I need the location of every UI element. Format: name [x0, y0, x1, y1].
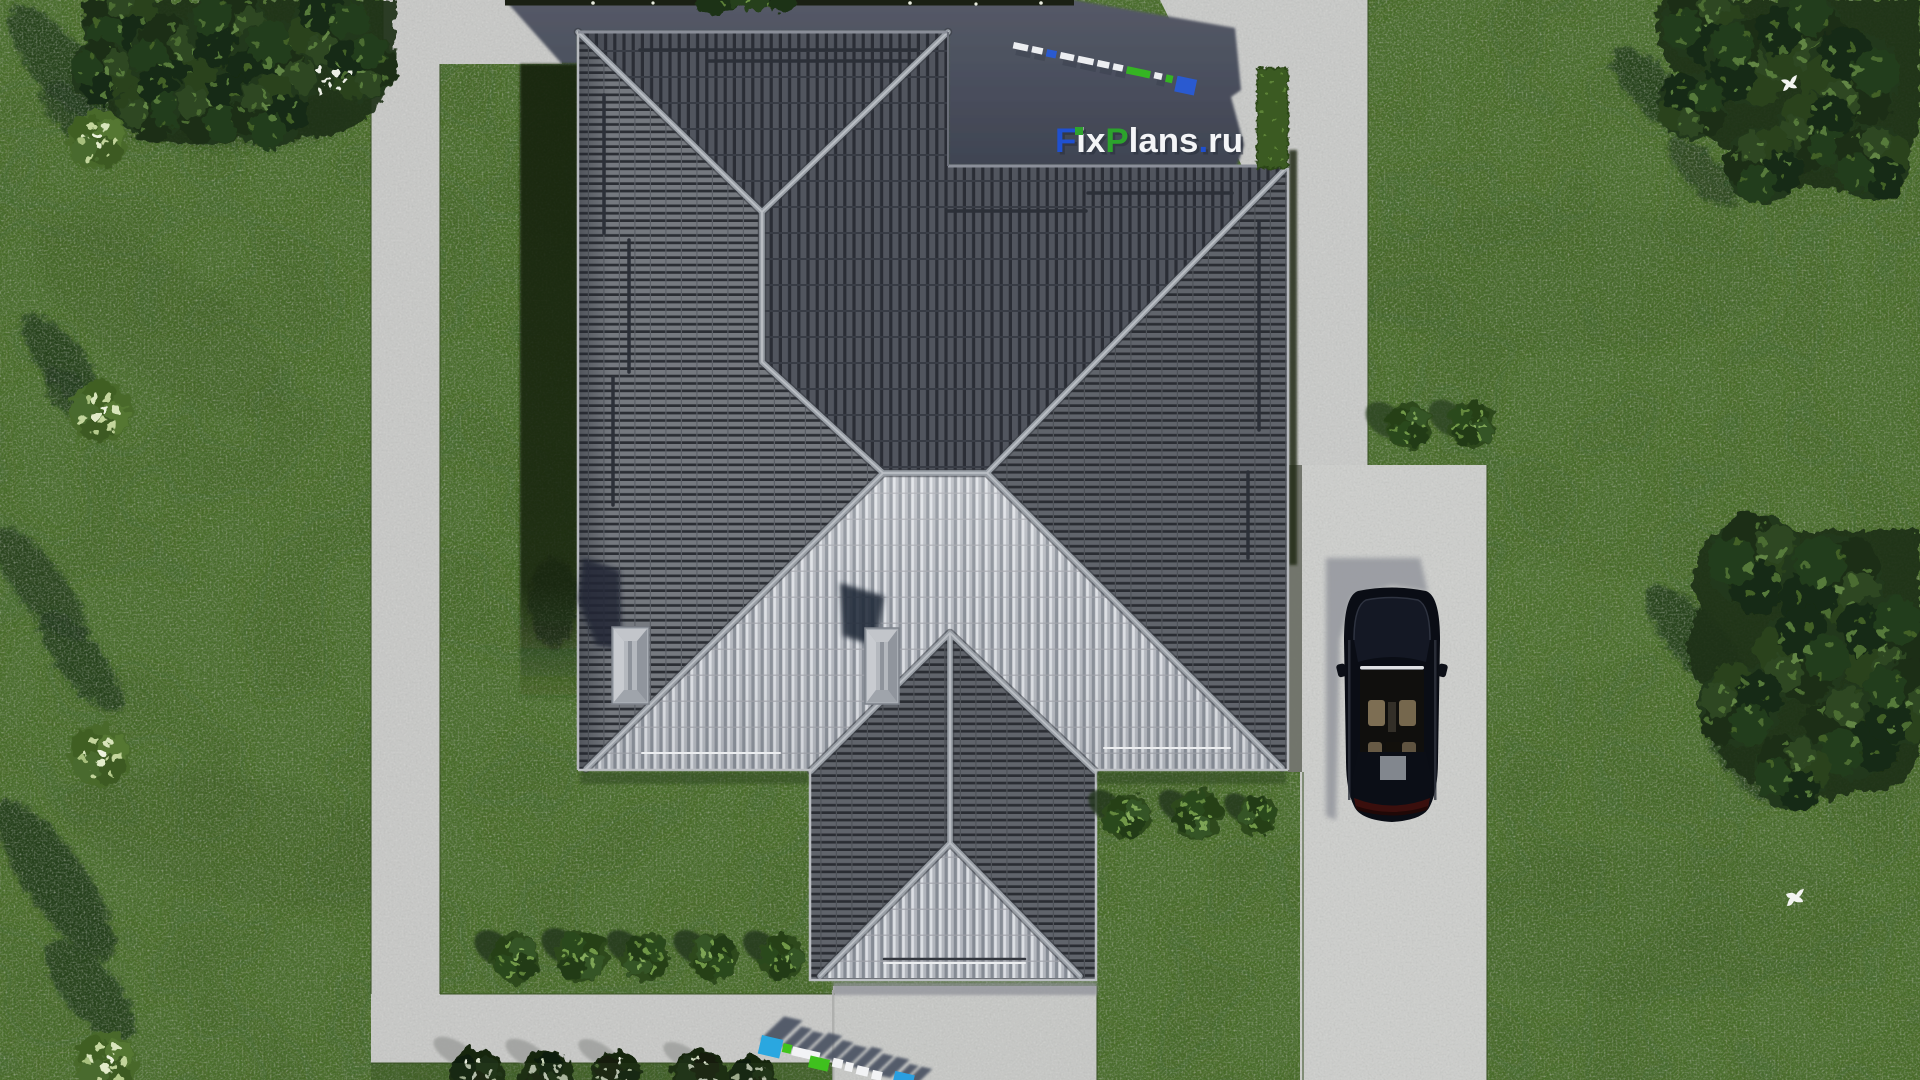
svg-text:FixPlans.ru: FixPlans.ru [1055, 122, 1243, 160]
